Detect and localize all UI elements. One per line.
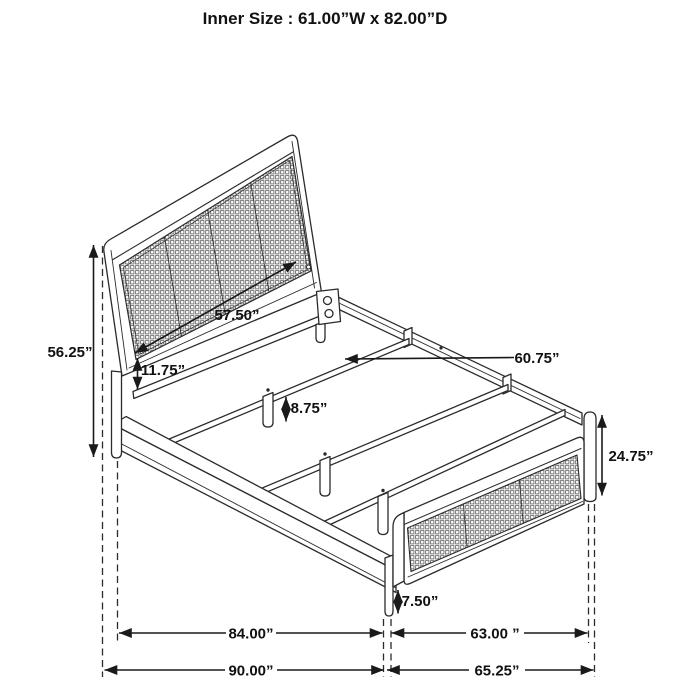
bed-dimension-diagram: 56.25” 57.50” 11.75” 60.75” 8.75” 24.75”… bbox=[0, 0, 700, 700]
bracket-bolt-hole bbox=[324, 297, 332, 305]
headboard-front-leg bbox=[112, 371, 122, 458]
slat bbox=[156, 339, 409, 451]
bolt-dot bbox=[323, 452, 326, 455]
dim-label-footboard-clearance: 7.50” bbox=[402, 593, 439, 610]
bolt-dot bbox=[439, 346, 442, 349]
mounting-bracket bbox=[317, 289, 341, 325]
dim-foot-inner-width: 63.00 ” bbox=[392, 626, 588, 643]
slat-leg bbox=[320, 457, 330, 497]
dim-headboard-height: 56.25” bbox=[47, 245, 93, 457]
dim-slat-leg-height: 8.75” bbox=[286, 397, 327, 422]
bracket-bolt-hole bbox=[325, 310, 333, 318]
footboard-front-leg bbox=[385, 555, 393, 616]
dim-label-rail-gap: 11.75” bbox=[141, 362, 185, 379]
dim-label-slat-leg-height: 8.75” bbox=[291, 400, 328, 417]
dim-label-overall-length: 90.00” bbox=[228, 663, 273, 680]
dim-label-slat-length: 60.75” bbox=[514, 350, 559, 367]
slat bbox=[249, 385, 508, 500]
slat-leg bbox=[378, 493, 388, 535]
dim-label-headboard-height: 56.25” bbox=[47, 344, 92, 361]
footboard-corner-post bbox=[393, 513, 404, 588]
dim-footboard-clearance: 7.50” bbox=[398, 590, 438, 614]
footboard-back-leg bbox=[584, 412, 596, 502]
page-title: Inner Size : 61.00”W x 82.00”D bbox=[203, 9, 448, 28]
dim-label-inner-length: 84.00” bbox=[228, 626, 273, 643]
dim-label-foot-overall-width: 65.25” bbox=[474, 663, 519, 680]
slat-leg bbox=[263, 393, 273, 428]
front-side-rail bbox=[113, 417, 402, 593]
bolt-hole bbox=[307, 265, 311, 269]
dim-footboard-height: 24.75” bbox=[602, 415, 654, 496]
bolt-dot bbox=[266, 388, 269, 391]
bolt-dot bbox=[381, 489, 384, 492]
footboard bbox=[385, 412, 596, 616]
dim-label-footboard-height: 24.75” bbox=[608, 448, 653, 465]
dim-label-headboard-width: 57.50” bbox=[214, 307, 259, 324]
dim-label-foot-inner-width: 63.00 ” bbox=[470, 626, 519, 643]
dim-foot-overall-width: 65.25” bbox=[387, 663, 594, 680]
dim-overall-length: 90.00” bbox=[105, 663, 385, 680]
diagram-canvas: 56.25” 57.50” 11.75” 60.75” 8.75” 24.75”… bbox=[0, 0, 700, 700]
dim-inner-length: 84.00” bbox=[119, 626, 383, 643]
headboard-back-leg bbox=[316, 322, 325, 343]
